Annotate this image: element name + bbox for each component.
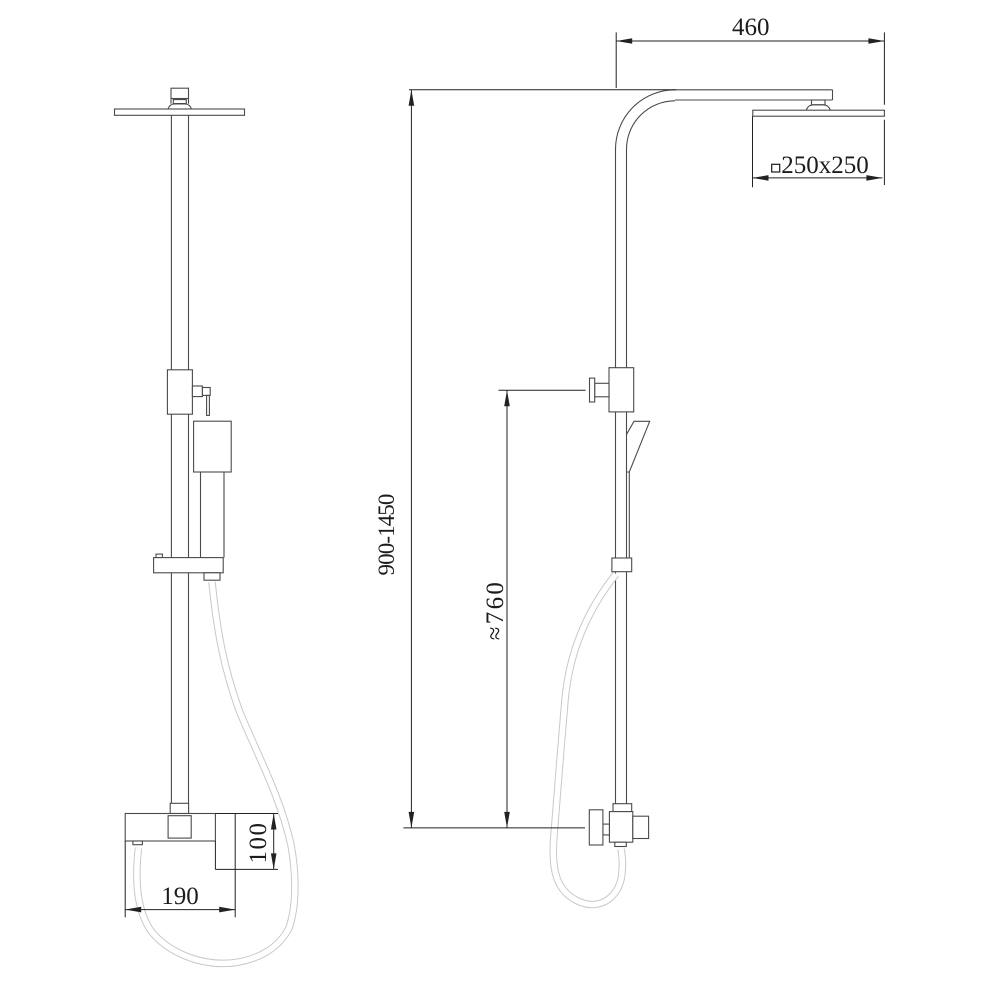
svg-text:250x250: 250x250: [781, 152, 869, 179]
svg-text:190: 190: [161, 883, 199, 910]
svg-text:100: 100: [245, 822, 272, 864]
svg-text:460: 460: [732, 14, 770, 41]
svg-text:≈760: ≈760: [482, 580, 509, 640]
svg-text:900-1450: 900-1450: [374, 494, 399, 575]
